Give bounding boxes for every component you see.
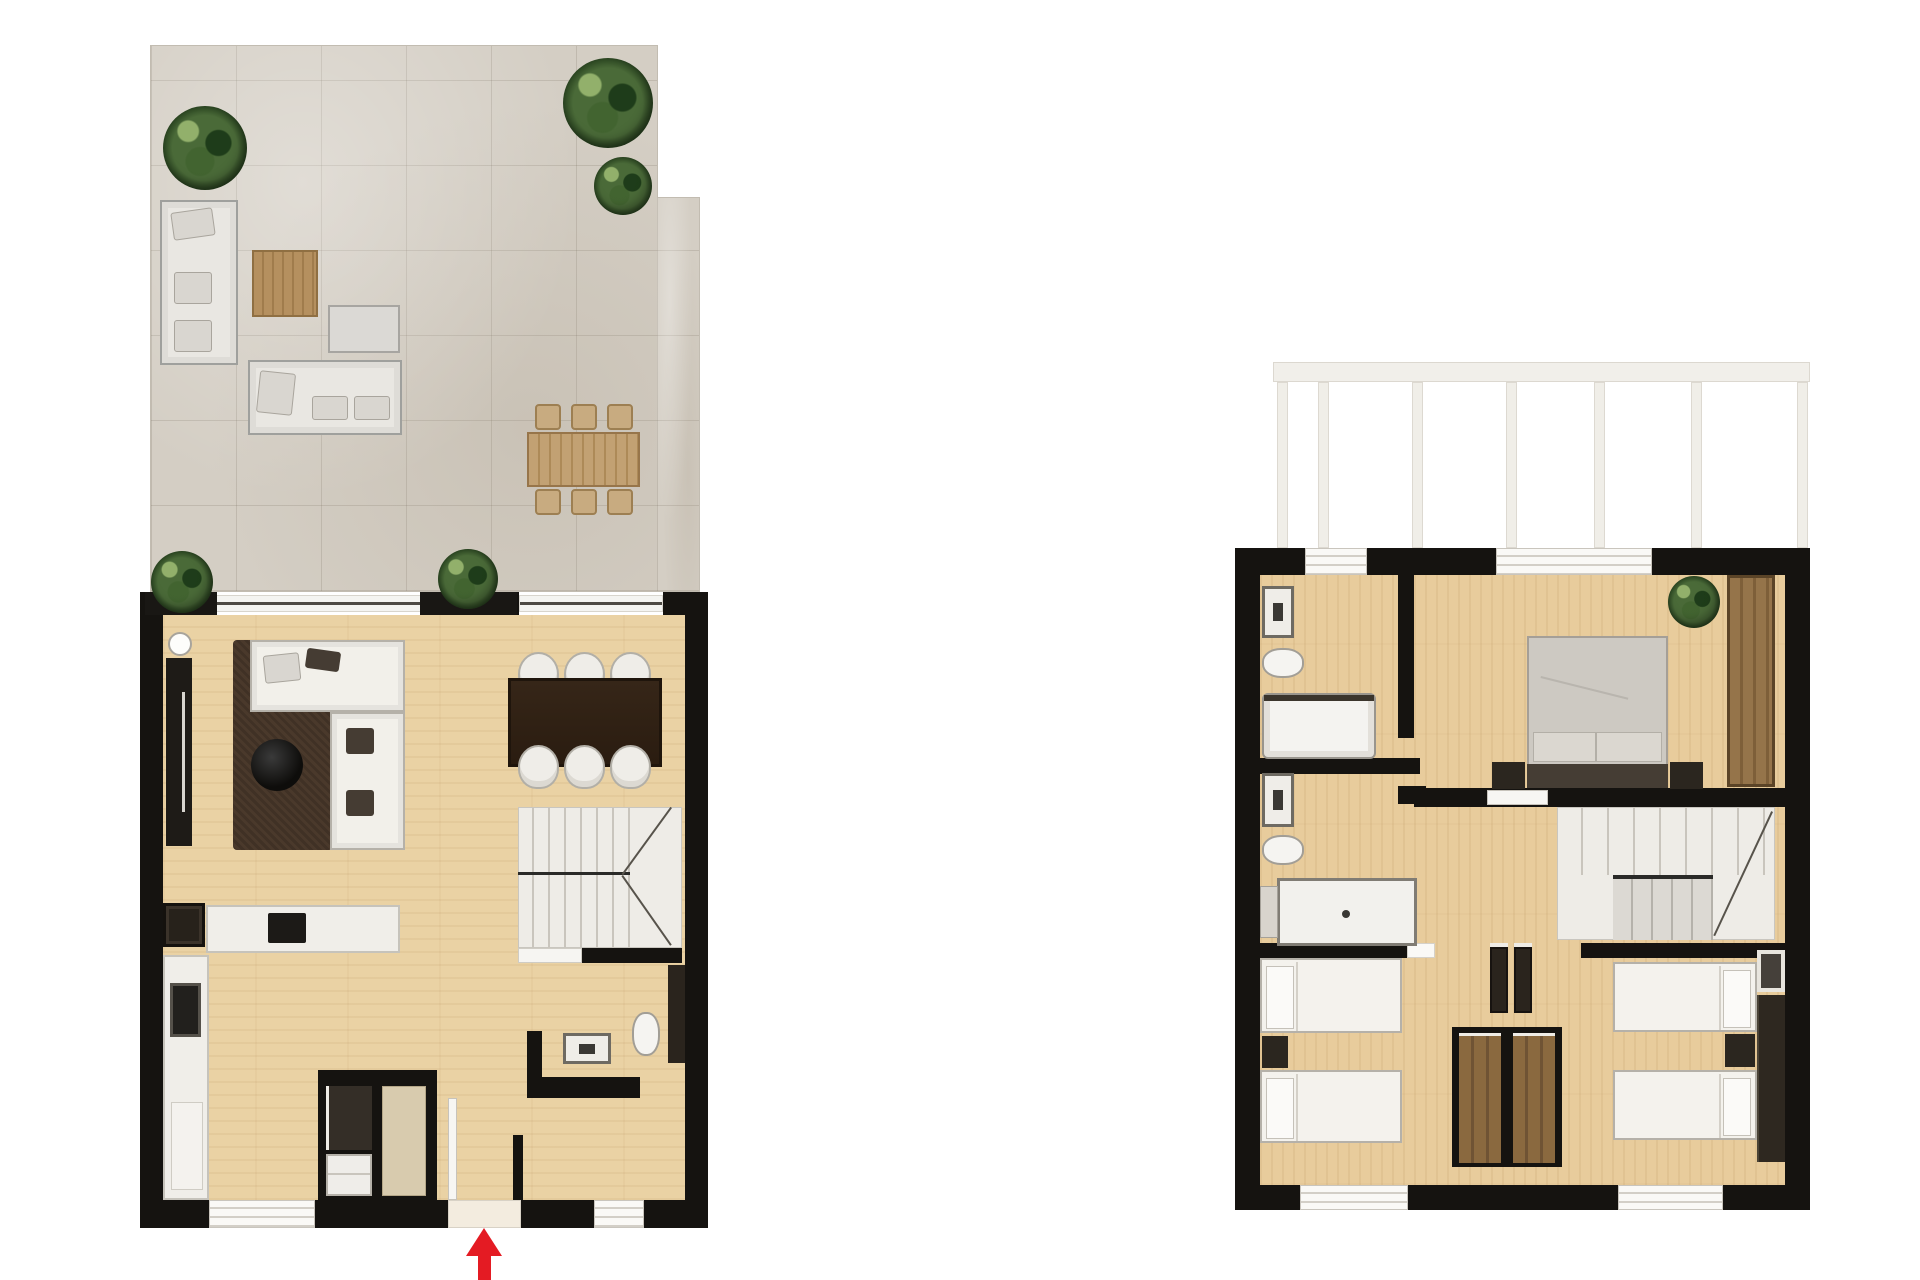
- kitchen-sink-icon: [170, 983, 201, 1037]
- washing-machine-icon: [326, 1154, 372, 1196]
- l-sofa-top-section: [250, 640, 405, 712]
- exterior-wall-right: [685, 592, 708, 1228]
- bedroom-door-panel: [1514, 943, 1532, 1013]
- railing-post: [1691, 382, 1702, 548]
- exterior-wall-bottom: [1260, 1185, 1300, 1210]
- closet-door-panel: [326, 1086, 372, 1150]
- dining-chair: [564, 745, 605, 789]
- outdoor-chair: [535, 404, 561, 430]
- railing-post: [1594, 382, 1605, 548]
- exterior-wall-left: [1235, 548, 1260, 1210]
- window: [1305, 548, 1367, 575]
- exterior-wall-bottom: [1408, 1185, 1618, 1210]
- window: [1496, 548, 1652, 575]
- understair-door-sill: [518, 948, 582, 963]
- railing-post: [1797, 382, 1808, 548]
- single-bed: [1260, 958, 1402, 1033]
- oven-column: [163, 903, 205, 947]
- terrace-plant-icon: [163, 106, 247, 190]
- window: [1618, 1185, 1723, 1210]
- nightstand: [1492, 762, 1525, 789]
- bathroom-door-panel: [668, 965, 685, 1063]
- railing-post: [1412, 382, 1423, 548]
- tv-unit: [166, 658, 192, 846]
- nightstand: [1262, 1036, 1288, 1068]
- round-coffee-table: [251, 739, 303, 791]
- bedroom-plant-icon: [1668, 576, 1720, 628]
- exterior-wall-top: [1260, 548, 1305, 575]
- framed-dresser: [1757, 950, 1785, 992]
- stair-bottom-wall: [1581, 943, 1785, 958]
- stair-landing-edge: [518, 872, 630, 875]
- nightstand: [1670, 762, 1703, 789]
- planter-plant-icon: [151, 551, 213, 613]
- exterior-wall-top: [1652, 548, 1785, 575]
- entrance-door-leaf: [448, 1098, 457, 1200]
- exterior-wall-bottom: [315, 1200, 448, 1228]
- outdoor-chair: [607, 404, 633, 430]
- nightstand: [1725, 1034, 1755, 1067]
- wardrobe-strip: [1757, 995, 1785, 1162]
- terrace-surface-extension: [657, 197, 700, 592]
- outdoor-dining-table: [527, 432, 640, 487]
- sliding-glass-door: [519, 595, 663, 612]
- master-bedroom-door-leaf: [1487, 790, 1548, 805]
- bathroom-wall: [527, 1077, 640, 1098]
- outdoor-side-table: [328, 305, 400, 353]
- planter-plant-icon: [438, 549, 498, 609]
- terrace-plant-icon: [563, 58, 653, 148]
- master-bed: [1527, 636, 1668, 767]
- double-wardrobe-block: [1452, 1027, 1562, 1167]
- exterior-wall-top: [663, 592, 685, 615]
- bedroom-door-panel: [1490, 943, 1508, 1013]
- stair-landing-edge: [1613, 875, 1713, 879]
- outdoor-sofa: [248, 360, 402, 435]
- exterior-wall-bottom: [1723, 1185, 1785, 1210]
- window: [594, 1200, 644, 1228]
- master-bedroom-wall: [1414, 788, 1785, 807]
- exterior-wall-bottom: [644, 1200, 685, 1228]
- dining-chair: [518, 745, 559, 789]
- l-sofa-right-section: [330, 712, 405, 850]
- closet-shelf-panel: [382, 1086, 426, 1196]
- exterior-wall-bottom: [163, 1200, 209, 1228]
- shower-tray: [1277, 878, 1417, 946]
- washbasin-vanity: [1262, 773, 1294, 827]
- single-bed: [1613, 962, 1757, 1032]
- toilet-icon: [1262, 648, 1304, 678]
- bathtub: [1262, 693, 1376, 759]
- sliding-glass-door: [216, 595, 425, 612]
- washbasin-vanity: [563, 1033, 611, 1064]
- understair-wall: [582, 948, 682, 963]
- outdoor-corner-sofa: [160, 200, 238, 365]
- master-headboard: [1527, 764, 1668, 788]
- railing-top-bar: [1273, 362, 1810, 382]
- floor-lamp-icon: [168, 632, 192, 656]
- cooktop-icon: [268, 913, 306, 943]
- dining-chair: [610, 745, 651, 789]
- bathroom-divider-wall: [1260, 758, 1420, 774]
- exterior-wall-top: [1367, 548, 1496, 575]
- dishwasher-front: [171, 1102, 203, 1190]
- window: [209, 1200, 315, 1228]
- stair-treads: [518, 807, 632, 948]
- toilet-icon: [632, 1012, 660, 1056]
- exterior-wall-right: [1785, 548, 1810, 1210]
- outdoor-chair: [607, 489, 633, 515]
- floorplan-canvas: [0, 0, 1920, 1280]
- hall-wall-stub: [513, 1135, 523, 1200]
- entrance-arrow-icon: [466, 1228, 502, 1256]
- washbasin-vanity: [1262, 586, 1294, 638]
- outdoor-chair: [535, 489, 561, 515]
- stair-lower-flight: [1613, 877, 1713, 940]
- toilet-icon: [1262, 835, 1304, 865]
- entrance-arrow-shaft: [478, 1256, 491, 1280]
- single-bed: [1260, 1070, 1402, 1143]
- railing-post: [1318, 382, 1329, 548]
- stair-treads: [1557, 807, 1770, 875]
- outdoor-chair: [571, 404, 597, 430]
- shower-fixture: [1260, 886, 1278, 938]
- entrance-door-sill: [448, 1200, 521, 1228]
- outdoor-chair: [571, 489, 597, 515]
- window: [1300, 1185, 1408, 1210]
- terrace-plant-icon: [594, 157, 652, 215]
- railing-post: [1277, 382, 1288, 548]
- exterior-wall-left: [140, 592, 163, 1228]
- outdoor-coffee-table: [252, 250, 318, 317]
- exterior-wall-bottom: [521, 1200, 594, 1228]
- built-in-wardrobe: [1727, 575, 1775, 787]
- railing-post: [1506, 382, 1517, 548]
- bathroom-partition-wall: [1398, 575, 1414, 738]
- single-bed: [1613, 1070, 1757, 1140]
